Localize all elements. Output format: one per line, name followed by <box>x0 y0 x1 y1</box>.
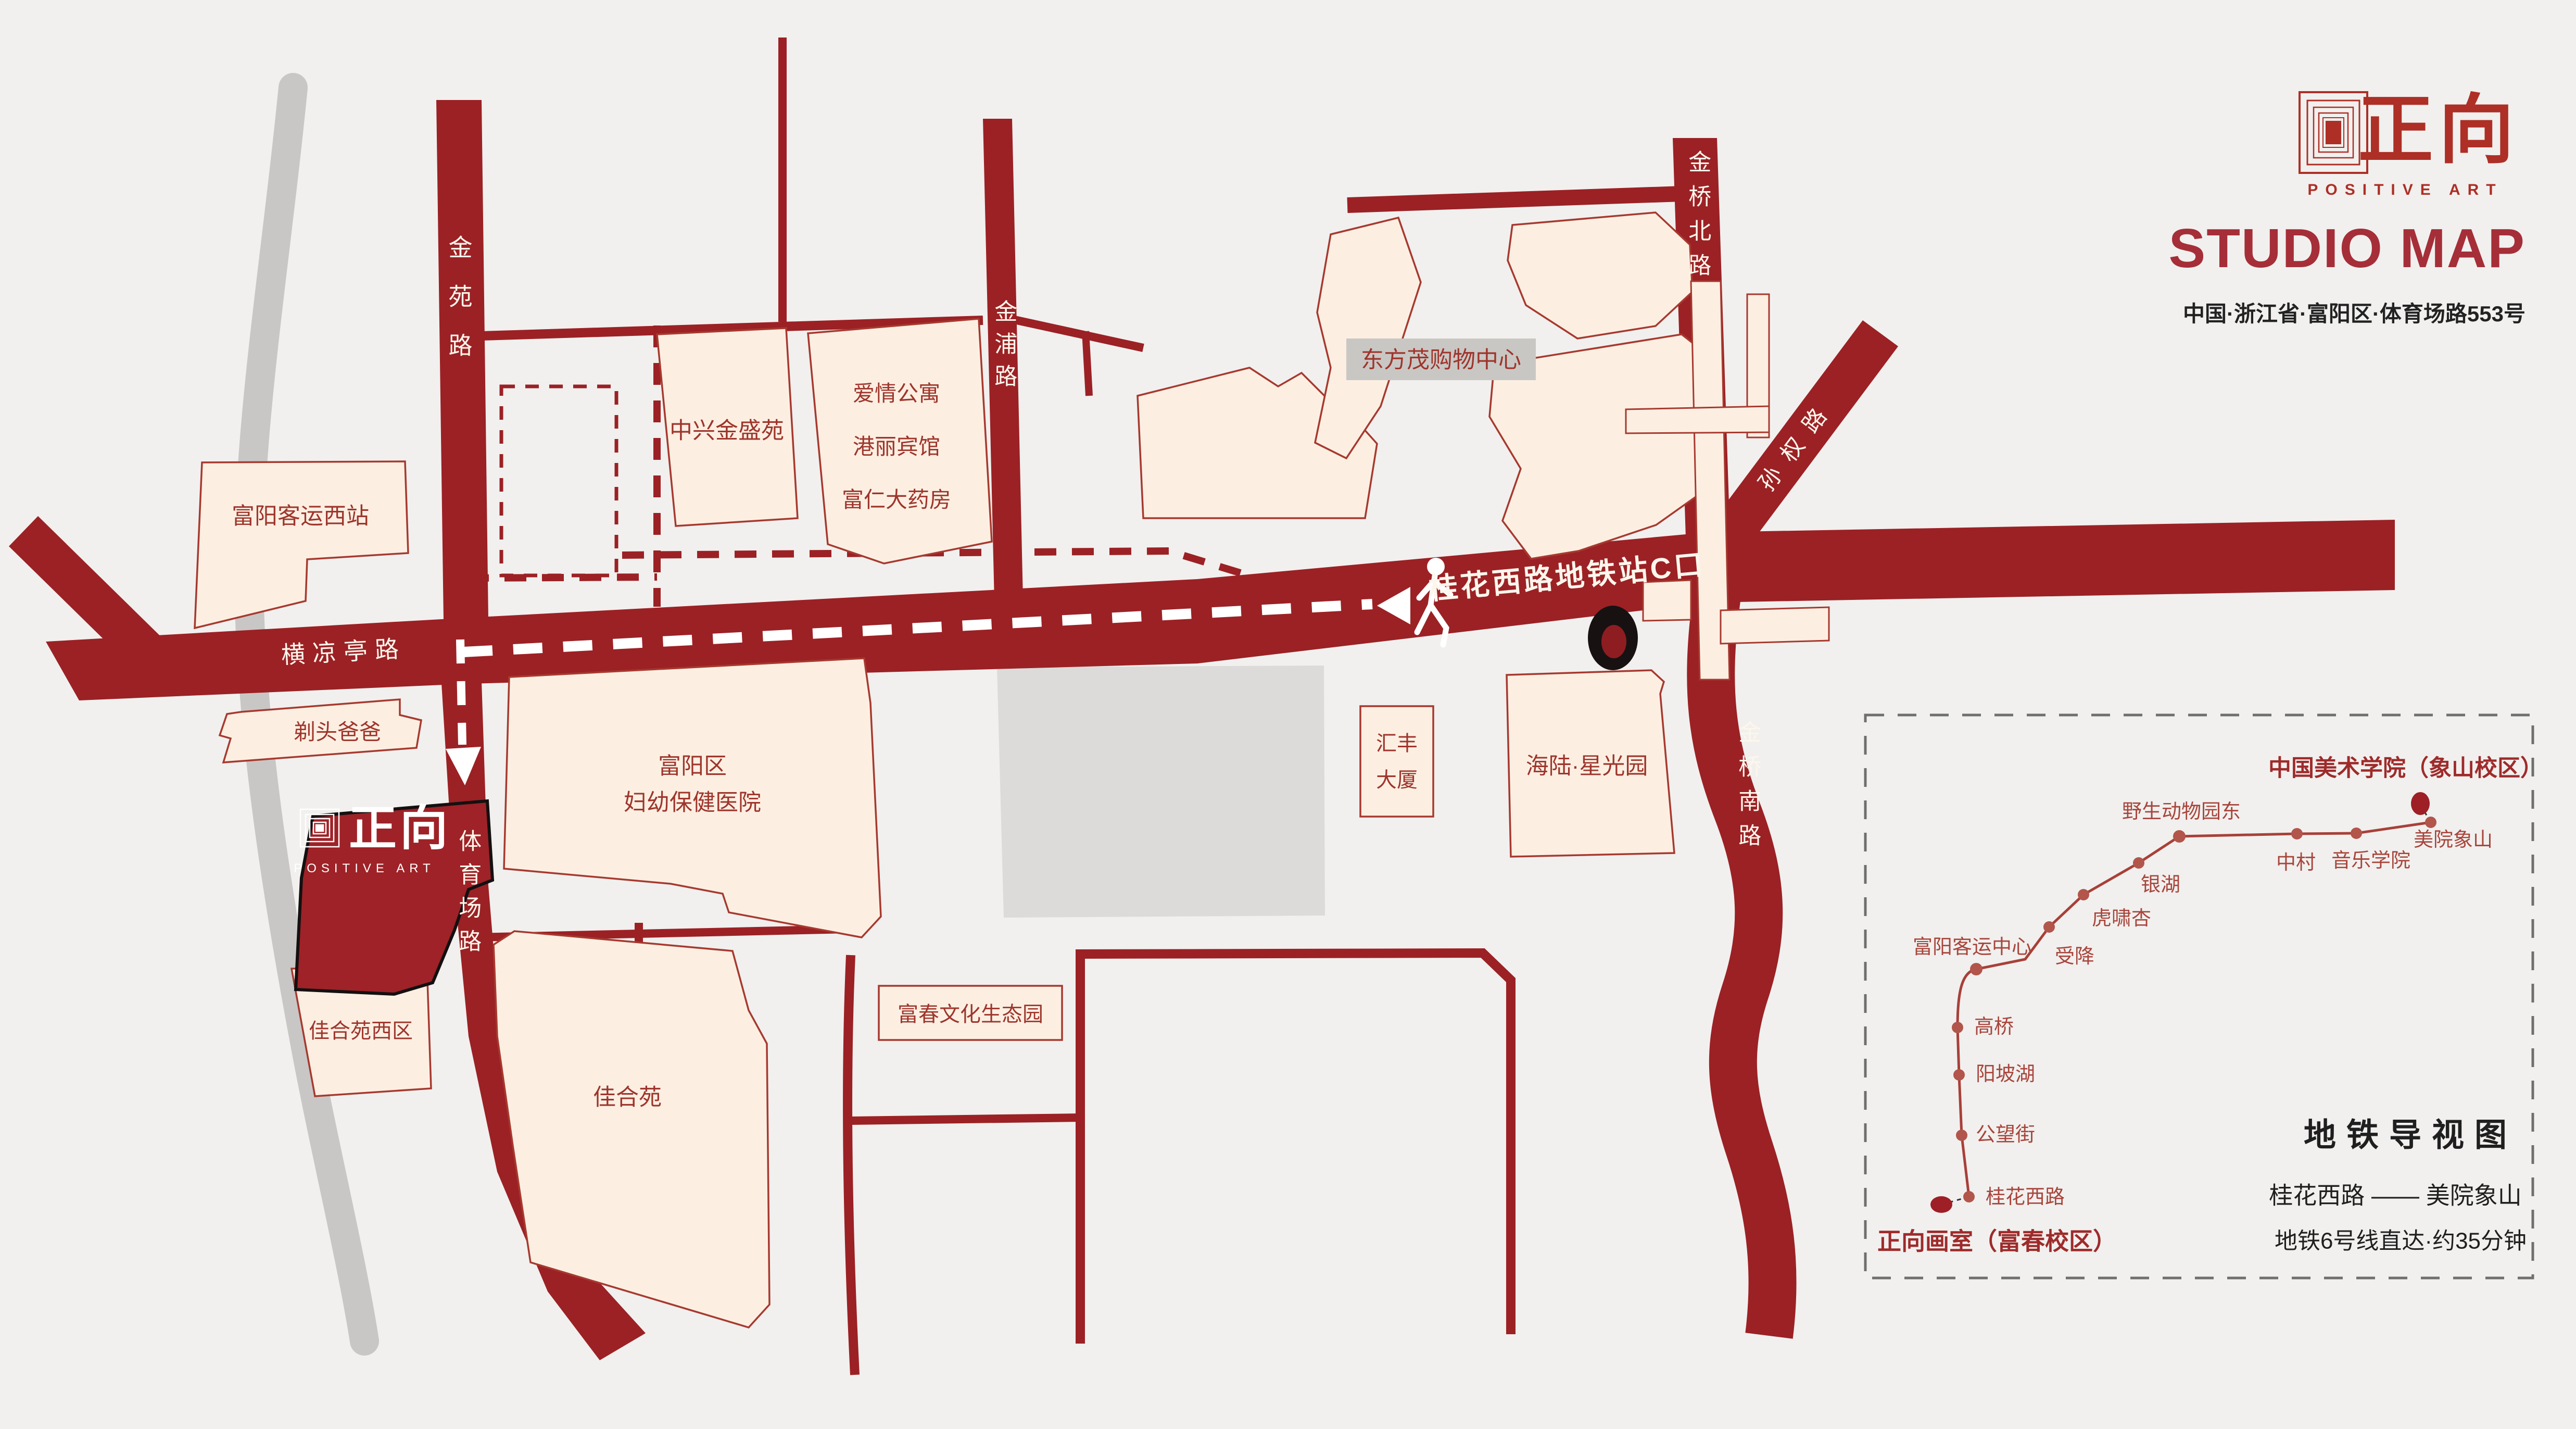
studio-brand-en: POSITIVE ART <box>294 861 435 876</box>
building-huifeng <box>1360 706 1433 817</box>
page-title: STUDIO MAP <box>2169 217 2526 281</box>
metro-route: 桂花西路 —— 美院象山 <box>2269 1182 2522 1210</box>
station-yangpohu: 阳坡湖 <box>1976 1063 2035 1086</box>
brand-name-cn: 正向 <box>2358 88 2519 175</box>
dashed-block <box>501 386 616 575</box>
station-zhongcun: 中村 <box>2276 852 2316 875</box>
station-yinyuexueyuan: 音乐学院 <box>2331 850 2410 873</box>
gray-block <box>997 666 1325 918</box>
brand-name-en: POSITIVE ART <box>2307 181 2503 199</box>
label-gangli: 港丽宾馆 <box>853 434 940 459</box>
metro-start-label: 正向画室（富春校区） <box>1877 1228 2117 1256</box>
station-shoujiang: 受降 <box>2055 946 2094 969</box>
station-guihuaxilu: 桂花西路 <box>1986 1186 2065 1209</box>
road-label-jinqiao-south: 金桥南路 <box>1734 720 1761 858</box>
road-label-jinyuan: 金苑路 <box>445 235 473 382</box>
label-huifeng-1: 汇丰 <box>1376 732 1418 756</box>
label-zhongxing: 中兴金盛苑 <box>670 418 784 445</box>
building-mall-nw <box>1315 218 1421 458</box>
tiyuchang-dashes <box>460 640 462 745</box>
station-meiyuanxiangshan: 美院象山 <box>2414 829 2493 852</box>
metro-end-label: 中国美术学院（象山校区） <box>2268 756 2543 782</box>
label-hailu: 海陆·星光园 <box>1526 754 1648 780</box>
label-fuchun-park: 富春文化生态园 <box>898 1002 1043 1026</box>
label-titou: 剃头爸爸 <box>294 720 381 745</box>
station-gongwangjie: 公望街 <box>1976 1124 2035 1147</box>
studio-logo-icon <box>300 809 339 847</box>
station-yinhu: 银湖 <box>2141 874 2180 897</box>
studio-address: 中国·浙江省·富阳区·体育场路553号 <box>2183 302 2526 327</box>
studio-brand-cn: 正向 <box>349 801 451 857</box>
metro-end-dot <box>2411 792 2430 815</box>
label-huifeng-2: 大厦 <box>1376 768 1418 792</box>
metro-start-dot <box>1930 1196 1952 1213</box>
label-furen: 富仁大药房 <box>842 487 951 512</box>
label-fuyang-hospital-1: 富阳区 <box>658 754 727 780</box>
metro-note: 地铁6号线直达·约35分钟 <box>2275 1229 2527 1255</box>
map-canvas <box>0 0 2576 1429</box>
label-fuyang-hospital-2: 妇幼保健医院 <box>624 790 761 817</box>
label-aiqing: 爱情公寓 <box>853 381 940 406</box>
building-bus-station-west <box>195 461 408 628</box>
station-gaoqiao: 高桥 <box>1974 1016 2014 1039</box>
metro-exit-marker-icon <box>1588 606 1638 670</box>
station-fuyangkeyunzhongxin: 富阳客运中心 <box>1913 936 2031 959</box>
studio-map-poster: 金苑路 金浦路 金桥北路 金桥南路 体育场路 孙权路 横凉亭路 桂花西路地铁站C… <box>0 0 2576 1429</box>
road-jinqiao-south <box>1711 588 1772 1336</box>
metro-diagram-title: 地铁导视图 <box>2304 1117 2517 1154</box>
building-jiaheyuan <box>494 931 769 1327</box>
label-jiaheyuan: 佳合苑 <box>593 1085 662 1111</box>
brand-logo-icon <box>2300 92 2367 173</box>
building-mall-ne <box>1508 212 1693 339</box>
label-dongfangmao: 东方茂购物中心 <box>1361 347 1521 374</box>
label-jiaheyuan-west: 佳合苑西区 <box>309 1019 413 1043</box>
road-label-jinqiao-north: 金桥北路 <box>1684 150 1711 287</box>
station-huxiaoxing: 虎啸杏 <box>2092 908 2151 931</box>
road-label-tiyuchang: 体育场路 <box>454 829 481 962</box>
label-bus-station-west: 富阳客运西站 <box>232 504 369 530</box>
station-yeshengdongwuyuandong: 野生动物园东 <box>2122 801 2241 824</box>
road-label-jinpu: 金浦路 <box>990 299 1017 396</box>
